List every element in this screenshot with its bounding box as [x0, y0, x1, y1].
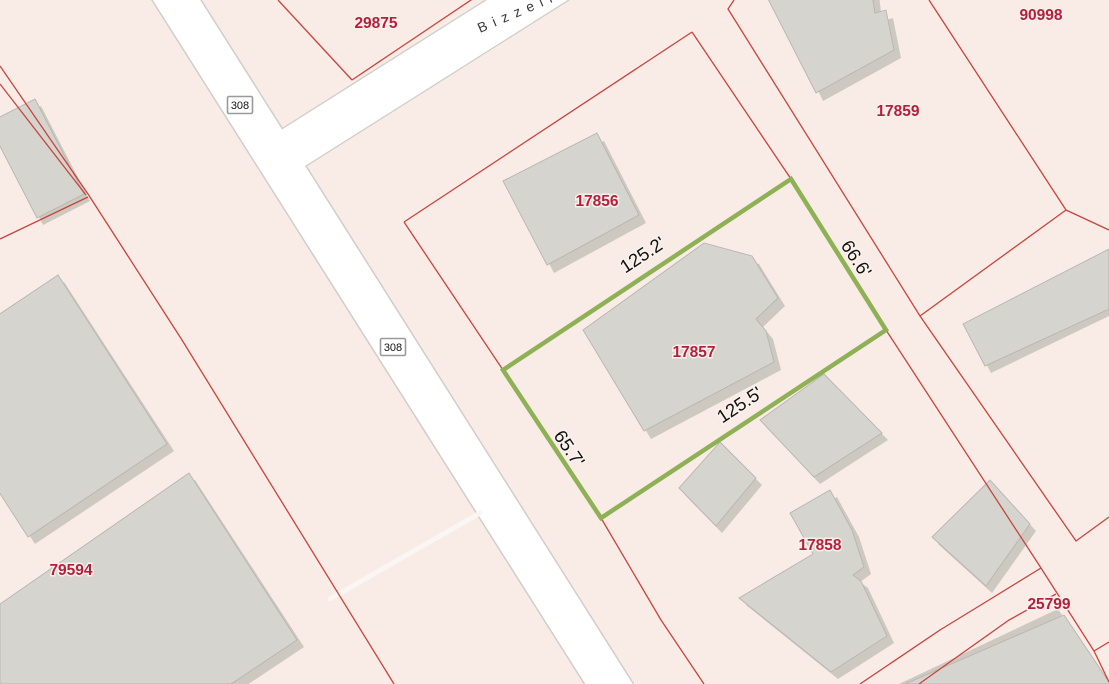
svg-text:29875: 29875	[354, 15, 397, 32]
svg-text:25799: 25799	[1027, 596, 1070, 613]
svg-text:79594: 79594	[49, 562, 92, 579]
svg-text:17857: 17857	[672, 344, 715, 361]
svg-text:308: 308	[231, 100, 249, 112]
svg-text:90998: 90998	[1019, 7, 1062, 24]
svg-text:17859: 17859	[876, 103, 919, 120]
svg-text:308: 308	[384, 342, 402, 354]
svg-text:17856: 17856	[575, 193, 618, 210]
svg-text:17858: 17858	[798, 537, 841, 554]
